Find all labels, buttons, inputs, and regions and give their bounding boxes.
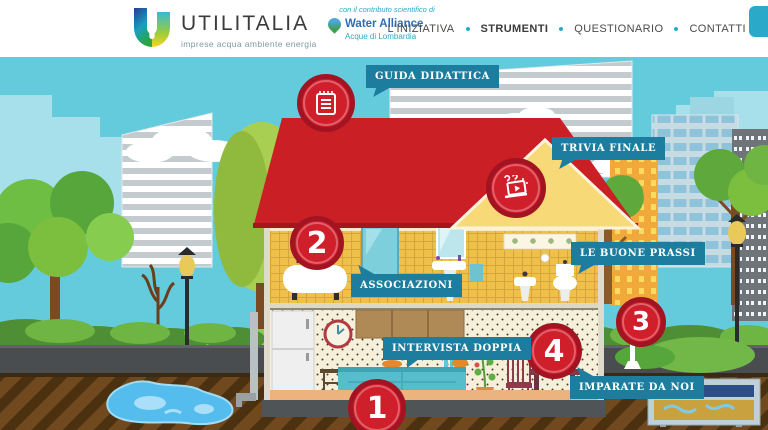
notepad-icon (314, 89, 338, 117)
hotspot-label-le-buone-prassi[interactable]: LE BUONE PRASSI (571, 242, 705, 265)
label-text: GUIDA DIDATTICA (375, 71, 490, 82)
marker-2-bathroom[interactable]: 2 (290, 216, 344, 270)
marker-trivia-finale[interactable] (486, 158, 546, 218)
site-header: UTILITALIA imprese acqua ambiente energi… (0, 0, 768, 57)
nav-separator-dot (559, 27, 563, 31)
marker-number: 4 (544, 334, 565, 369)
nav-item-questionario[interactable]: QUESTIONARIO (574, 23, 663, 35)
logo-text: UTILITALIA imprese acqua ambiente energi… (181, 6, 317, 49)
main-navigation: L'INIZIATIVA STRUMENTI QUESTIONARIO CONT… (388, 0, 747, 57)
hotspot-label-associazioni[interactable]: ASSOCIAZIONI (351, 274, 462, 297)
label-text: ASSOCIAZIONI (360, 280, 453, 291)
water-drop-icon (325, 15, 343, 33)
marker-number: 1 (367, 391, 388, 426)
hotspot-label-imparate-da-noi[interactable]: IMPARATE DA NOI (570, 376, 704, 399)
label-text: LE BUONE PRASSI (580, 248, 696, 259)
nav-separator-dot (674, 27, 678, 31)
nav-item-iniziativa[interactable]: L'INIZIATIVA (388, 23, 455, 35)
nav-item-strumenti[interactable]: STRUMENTI (481, 23, 549, 35)
label-text: TRIVIA FINALE (561, 143, 656, 154)
utilitalia-logo-icon (131, 6, 173, 55)
marker-3-street[interactable]: 3 (616, 297, 666, 347)
nav-separator-dot (466, 27, 470, 31)
logo-tagline: imprese acqua ambiente energia (181, 39, 317, 49)
marker-guida-didattica[interactable] (297, 74, 355, 132)
header-side-button[interactable] (749, 6, 768, 37)
utilitalia-logo[interactable]: UTILITALIA imprese acqua ambiente energi… (131, 6, 317, 55)
logo-name: UTILITALIA (181, 12, 317, 36)
hotspot-label-intervista-doppia[interactable]: INTERVISTA DOPPIA (383, 337, 531, 360)
marker-number: 3 (632, 307, 650, 337)
label-text: INTERVISTA DOPPIA (392, 343, 522, 354)
nav-item-contatti[interactable]: CONTATTI (689, 23, 746, 35)
hotspot-label-guida-didattica[interactable]: GUIDA DIDATTICA (366, 65, 499, 88)
marker-number: 2 (307, 226, 328, 261)
marker-4-dining[interactable]: 4 (526, 323, 582, 379)
quiz-laptop-icon (501, 175, 531, 201)
marker-1-kitchen[interactable]: 1 (348, 379, 406, 430)
label-text: IMPARATE DA NOI (579, 382, 695, 393)
hotspot-label-trivia-finale[interactable]: TRIVIA FINALE (552, 137, 665, 160)
utilitalia-landing-page: UTILITALIA imprese acqua ambiente energi… (0, 0, 768, 430)
